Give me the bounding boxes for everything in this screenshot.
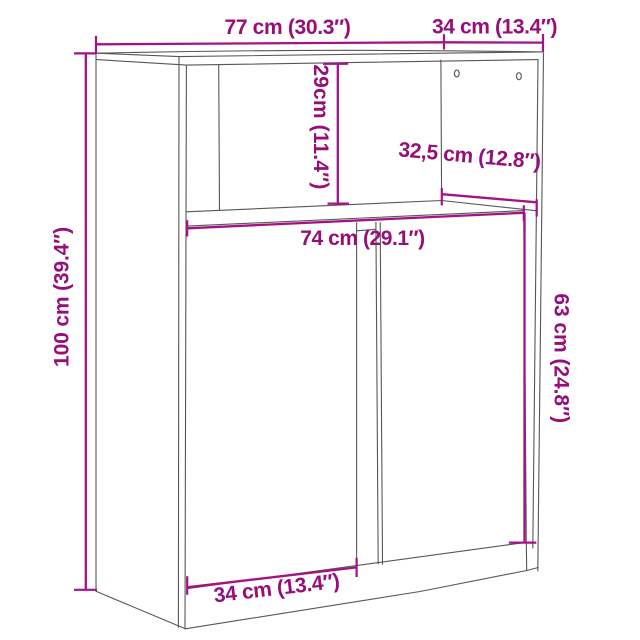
svg-text:100 cm (39.4″): 100 cm (39.4″) — [51, 227, 74, 367]
svg-text:77 cm (30.3″): 77 cm (30.3″) — [224, 16, 350, 39]
svg-text:63 cm (24.8″): 63 cm (24.8″) — [550, 293, 573, 423]
svg-text:74 cm (29.1″): 74 cm (29.1″) — [300, 227, 424, 250]
svg-text:34 cm (13.4″): 34 cm (13.4″) — [432, 16, 557, 39]
svg-text:29cm (11.4″): 29cm (11.4″) — [309, 64, 332, 189]
